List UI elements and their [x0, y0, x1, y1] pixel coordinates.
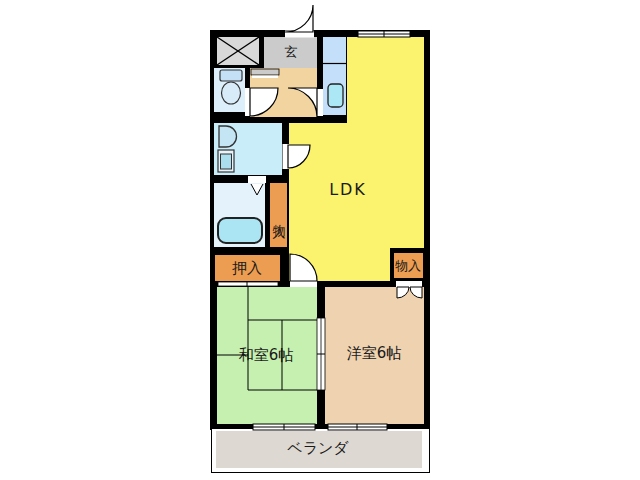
youshitsu-label: 洋室6帖	[347, 346, 402, 361]
floor-plan-canvas: 玄 LDK 物入 押入 物入 和室6帖 洋室6帖 ベランダ	[0, 0, 640, 480]
hallway	[250, 68, 317, 117]
bathroom	[214, 183, 265, 247]
toilet-room	[214, 68, 245, 112]
veranda-label: ベランダ	[287, 441, 348, 456]
oshiire-label: 押入	[232, 261, 262, 276]
washitsu-label: 和室6帖	[239, 348, 294, 363]
ldk-room-lower	[289, 217, 390, 281]
genkan-label: 玄	[285, 45, 298, 58]
kitchen-counter	[323, 37, 347, 115]
storage-bedroom-label: 物入	[395, 259, 421, 272]
storage-hall-label: 物入	[273, 214, 286, 216]
washroom	[214, 123, 282, 175]
ldk-label: LDK	[329, 182, 367, 198]
elevator-shaft	[217, 37, 259, 65]
ldk-room-upper	[347, 37, 424, 123]
